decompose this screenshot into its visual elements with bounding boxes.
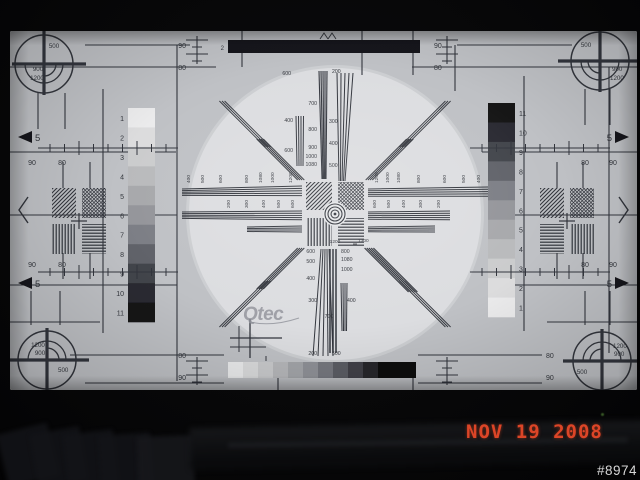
svg-text:400: 400 — [401, 200, 407, 208]
pattern-root: 9080908080908090908090808090809050090012… — [10, 31, 637, 390]
svg-text:80: 80 — [178, 65, 186, 72]
svg-text:1200: 1200 — [31, 342, 45, 349]
svg-text:200: 200 — [436, 200, 442, 208]
svg-text:1200: 1200 — [330, 239, 341, 245]
svg-text:800: 800 — [244, 175, 250, 183]
svg-text:3: 3 — [120, 155, 124, 162]
svg-text:1200: 1200 — [374, 172, 380, 183]
svg-text:700: 700 — [325, 314, 334, 320]
svg-text:600: 600 — [442, 175, 448, 183]
svg-text:Qtec: Qtec — [243, 304, 284, 325]
svg-text:900: 900 — [308, 145, 317, 151]
svg-text:90: 90 — [609, 160, 617, 167]
foreground-case — [137, 435, 195, 480]
svg-text:500: 500 — [58, 367, 69, 374]
svg-text:900: 900 — [35, 350, 46, 357]
svg-text:900: 900 — [614, 351, 625, 358]
monitor-screen: 9080908080908090908090808090809050090012… — [10, 31, 637, 390]
svg-text:90: 90 — [28, 262, 36, 269]
svg-text:80: 80 — [178, 353, 186, 360]
svg-text:90: 90 — [434, 43, 442, 50]
svg-text:80: 80 — [434, 65, 442, 72]
svg-text:6: 6 — [519, 208, 523, 215]
svg-text:80: 80 — [58, 262, 66, 269]
svg-text:1080: 1080 — [396, 172, 402, 183]
grayscale-bar-left: 1234567891011 — [116, 108, 155, 322]
svg-text:500: 500 — [461, 175, 467, 183]
svg-text:10: 10 — [519, 130, 527, 137]
svg-text:7: 7 — [120, 233, 124, 240]
svg-text:7: 7 — [519, 189, 523, 196]
svg-text:300: 300 — [418, 200, 424, 208]
svg-text:6: 6 — [120, 213, 124, 220]
svg-text:1200: 1200 — [288, 172, 294, 183]
svg-text:400: 400 — [261, 200, 267, 208]
svg-text:8: 8 — [519, 169, 523, 176]
svg-text:500: 500 — [329, 163, 338, 169]
svg-text:400: 400 — [284, 118, 293, 124]
svg-text:5: 5 — [35, 133, 40, 144]
svg-text:500: 500 — [386, 200, 392, 208]
svg-text:1080: 1080 — [305, 162, 317, 168]
svg-text:11: 11 — [519, 111, 526, 118]
svg-text:400: 400 — [476, 175, 482, 183]
grayscale-bar-right: 1110987654321 — [488, 103, 527, 317]
svg-text:1080: 1080 — [341, 257, 353, 263]
svg-text:500: 500 — [306, 259, 315, 265]
svg-text:500: 500 — [49, 43, 60, 50]
svg-text:90: 90 — [546, 375, 554, 382]
svg-text:800: 800 — [308, 127, 317, 133]
svg-text:1: 1 — [519, 306, 523, 313]
svg-text:90: 90 — [178, 43, 186, 50]
svg-text:1200: 1200 — [30, 75, 44, 82]
svg-text:1200: 1200 — [610, 75, 624, 82]
svg-text:800: 800 — [341, 249, 350, 255]
svg-text:2: 2 — [519, 286, 523, 293]
photo-counter: #8974 — [597, 463, 637, 478]
svg-text:400: 400 — [347, 298, 356, 304]
svg-text:1300: 1300 — [358, 238, 369, 244]
svg-text:5: 5 — [607, 279, 612, 290]
svg-text:5: 5 — [519, 228, 523, 235]
svg-text:400: 400 — [306, 276, 315, 282]
svg-text:500: 500 — [332, 351, 341, 357]
svg-text:80: 80 — [581, 262, 589, 269]
svg-text:1000: 1000 — [270, 172, 276, 183]
svg-text:90: 90 — [178, 375, 186, 382]
svg-text:200: 200 — [226, 200, 232, 208]
svg-text:4: 4 — [519, 247, 523, 254]
svg-text:600: 600 — [290, 200, 296, 208]
svg-text:5: 5 — [607, 133, 612, 144]
svg-text:2: 2 — [120, 135, 124, 142]
photo-background: 9080908080908090908090808090809050090012… — [0, 0, 640, 480]
svg-text:1200: 1200 — [613, 343, 627, 350]
svg-text:500: 500 — [581, 42, 592, 49]
svg-text:800: 800 — [416, 175, 422, 183]
svg-text:300: 300 — [244, 200, 250, 208]
svg-text:1000: 1000 — [385, 172, 391, 183]
svg-text:8: 8 — [120, 252, 124, 259]
svg-text:80: 80 — [546, 353, 554, 360]
test-pattern-chart: 9080908080908090908090808090809050090012… — [10, 31, 637, 390]
svg-text:11: 11 — [117, 311, 124, 318]
svg-text:500: 500 — [200, 175, 206, 183]
svg-text:500: 500 — [577, 369, 588, 376]
svg-text:1000: 1000 — [305, 154, 317, 160]
camera-indicator-dot — [601, 413, 604, 416]
svg-text:300: 300 — [329, 119, 338, 125]
svg-text:900: 900 — [33, 66, 44, 73]
svg-text:400: 400 — [329, 141, 338, 147]
svg-text:500: 500 — [276, 200, 282, 208]
svg-text:80: 80 — [581, 160, 589, 167]
svg-text:9: 9 — [519, 150, 523, 157]
svg-text:10: 10 — [116, 291, 124, 298]
svg-text:4: 4 — [120, 174, 124, 181]
svg-text:1080: 1080 — [258, 172, 264, 183]
svg-text:700: 700 — [308, 101, 317, 107]
svg-text:600: 600 — [306, 249, 315, 255]
svg-text:1000: 1000 — [341, 267, 353, 273]
svg-text:400: 400 — [186, 175, 192, 183]
svg-text:1: 1 — [120, 116, 124, 123]
date-stamp: NOV 19 2008 — [466, 421, 603, 443]
svg-text:5: 5 — [35, 279, 40, 290]
svg-text:600: 600 — [282, 71, 291, 77]
svg-text:200: 200 — [308, 351, 317, 357]
svg-text:80: 80 — [58, 160, 66, 167]
svg-text:3: 3 — [519, 267, 523, 274]
svg-text:600: 600 — [372, 200, 378, 208]
svg-text:90: 90 — [28, 160, 36, 167]
svg-text:300: 300 — [308, 298, 317, 304]
svg-text:90: 90 — [609, 262, 617, 269]
svg-text:900: 900 — [612, 66, 623, 73]
svg-text:5: 5 — [120, 194, 124, 201]
svg-text:600: 600 — [218, 175, 224, 183]
svg-text:200: 200 — [332, 69, 341, 75]
svg-text:600: 600 — [284, 148, 293, 154]
